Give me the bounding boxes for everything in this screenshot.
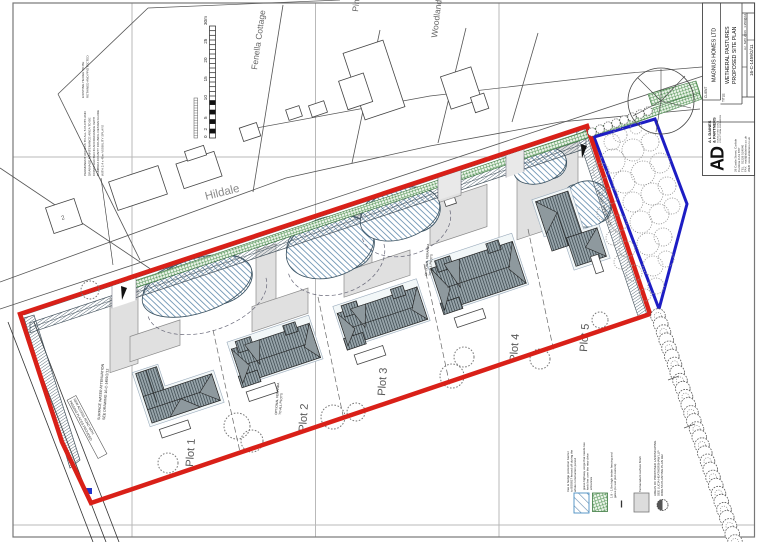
svg-text:5: 5 (203, 116, 208, 119)
svg-text:Pin: Pin (350, 0, 361, 12)
svg-text:Plot 3: Plot 3 (376, 367, 390, 396)
svg-text:10: 10 (203, 95, 208, 101)
svg-text:TITLE: TITLE (722, 93, 726, 102)
svg-text:CLIENT: CLIENT (704, 87, 708, 98)
svg-text:AJ MAY 2016 1:250@A1: AJ MAY 2016 1:250@A1 (743, 13, 747, 50)
svg-text:15: 15 (203, 76, 208, 82)
svg-text:30m: 30m (203, 16, 208, 25)
svg-text:DWG 56 PLANTING PLAN 922: DWG 56 PLANTING PLAN 922 (660, 454, 664, 496)
svg-text:2: 2 (203, 128, 208, 131)
svg-text:16-C-1459/2/11: 16-C-1459/2/11 (749, 44, 754, 76)
svg-text:CUMBRIA COUNTY COUNCIL DESIGN: CUMBRIA COUNTY COUNCIL DESIGN GUIDE (96, 110, 100, 176)
svg-text:STRUCTURAL ENGINEERS: STRUCTURAL ENGINEERS (719, 114, 722, 143)
svg-text:whole construction period: whole construction period (573, 458, 577, 492)
svg-text:PROPOSED SITE PLAN: PROPOSED SITE PLAN (732, 26, 738, 84)
svg-text:EXISTING HEDGE TO BE: EXISTING HEDGE TO BE (81, 62, 85, 98)
svg-text:WEB www.aldaines.co.uk: WEB www.aldaines.co.uk (747, 137, 751, 172)
svg-text:WITH 2.4 x 45m VISIBILITY SPLA: WITH 2.4 x 45m VISIBILITY SPLAYS (101, 125, 105, 176)
svg-text:20: 20 (203, 57, 208, 63)
svg-text:Tarmacadam surface finish: Tarmacadam surface finish (638, 456, 642, 492)
svg-text:25: 25 (203, 38, 208, 44)
svg-text:Plot 1: Plot 1 (184, 438, 198, 467)
svg-text:RETAINED AND PROTECTED: RETAINED AND PROTECTED (85, 55, 89, 98)
svg-text:MAGNUS HOMES LTD: MAGNUS HOMES LTD (712, 28, 718, 82)
svg-text:& PARTNERS: & PARTNERS (712, 117, 717, 143)
svg-text:0: 0 (203, 135, 208, 138)
svg-text:gates (to suit plot owners): gates (to suit plot owners) (613, 464, 617, 498)
svg-text:PERMANENT ACCESS TO ALL 5 PLOT: PERMANENT ACCESS TO ALL 5 PLOTS AND (83, 111, 87, 176)
svg-text:entrances: entrances (589, 476, 593, 490)
svg-text:AD: AD (708, 146, 728, 171)
svg-text:WETHERAL PASTURES: WETHERAL PASTURES (725, 26, 731, 84)
svg-text:DRAINAGE MAINTENANCE AREA TO B: DRAINAGE MAINTENANCE AREA TO BE (87, 117, 91, 176)
svg-text:CONSTRUCTED IN ACCORDANCE WITH: CONSTRUCTED IN ACCORDANCE WITH (92, 117, 96, 176)
